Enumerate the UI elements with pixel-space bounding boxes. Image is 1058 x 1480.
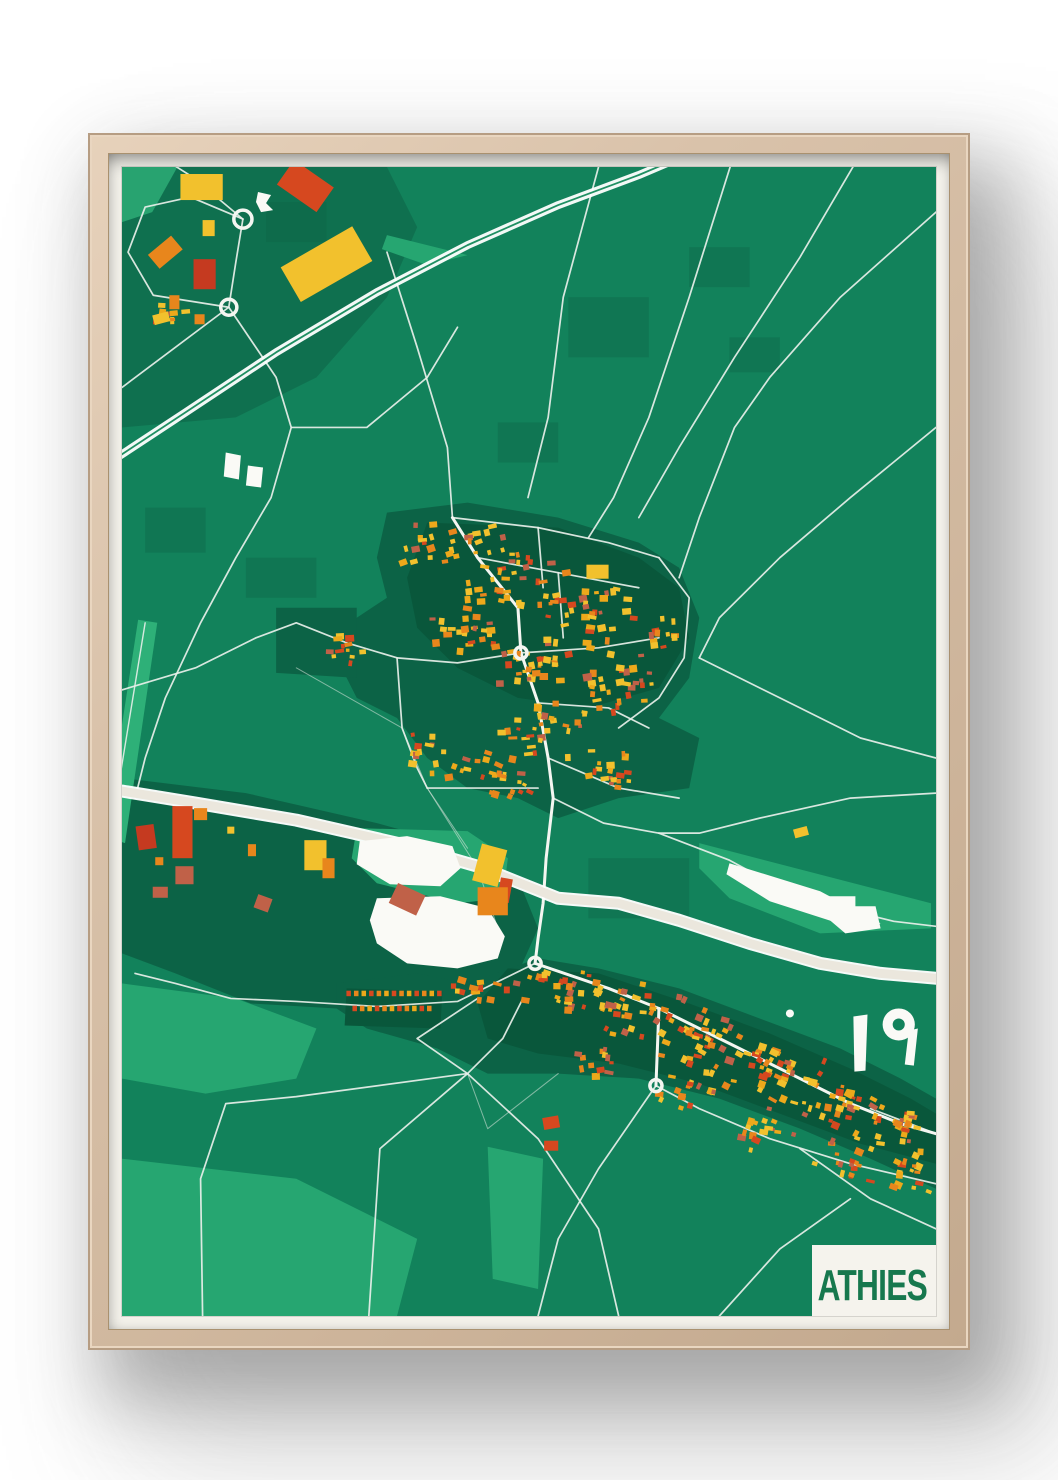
poster-mat: ATHIES [109, 154, 949, 1329]
poster-title: ATHIES [817, 1266, 927, 1306]
poster-frame: ATHIES [88, 133, 970, 1350]
city-map: ATHIES [122, 167, 936, 1316]
poster-title-box: ATHIES [812, 1245, 936, 1316]
city-map-svg [122, 167, 936, 1316]
